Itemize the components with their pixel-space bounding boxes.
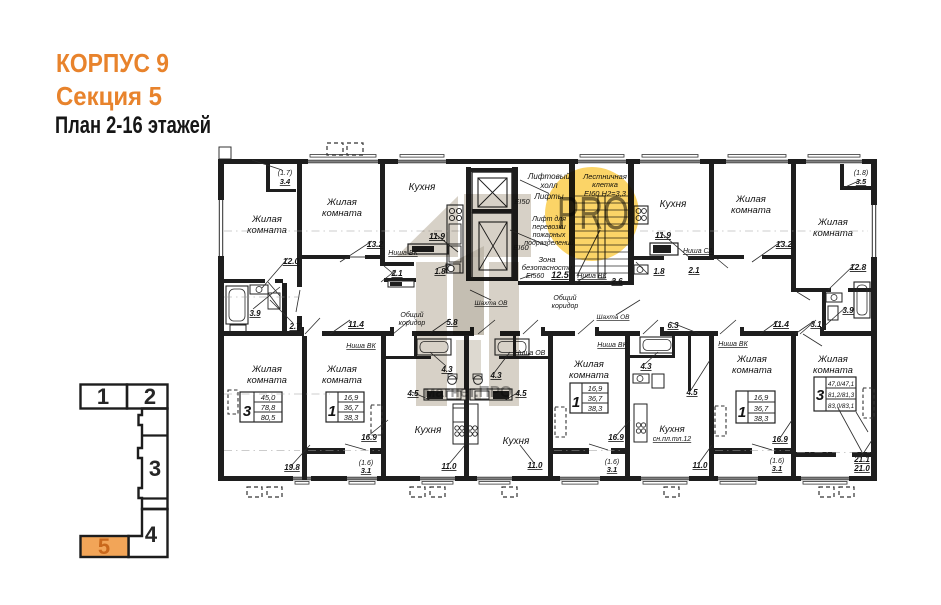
svg-text:комната: комната bbox=[247, 225, 287, 236]
svg-text:36,7: 36,7 bbox=[344, 403, 359, 412]
svg-text:16,9: 16,9 bbox=[344, 393, 359, 402]
svg-text:Секция 5: Секция 5 bbox=[56, 81, 162, 111]
svg-text:3: 3 bbox=[816, 387, 825, 404]
svg-text:1: 1 bbox=[97, 384, 109, 409]
svg-text:ЕІ560: ЕІ560 bbox=[526, 273, 544, 280]
svg-text:4: 4 bbox=[145, 522, 158, 547]
svg-text:Жилая: Жилая bbox=[573, 359, 604, 370]
svg-text:21.0: 21.0 bbox=[853, 464, 870, 473]
svg-text:сн.пл.тл.12: сн.пл.тл.12 bbox=[653, 436, 692, 443]
svg-text:Общий: Общий bbox=[553, 294, 576, 302]
svg-text:3: 3 bbox=[243, 403, 252, 420]
svg-text:Ниша ОВ: Ниша ОВ bbox=[515, 350, 546, 357]
svg-text:КОРПУС 9: КОРПУС 9 bbox=[56, 50, 169, 78]
svg-text:81,2/81,3: 81,2/81,3 bbox=[828, 392, 855, 399]
svg-text:11.0: 11.0 bbox=[528, 461, 544, 470]
svg-text:PRO: PRO bbox=[557, 187, 629, 239]
svg-text:Жилая: Жилая bbox=[817, 354, 848, 365]
svg-text:11.0: 11.0 bbox=[693, 461, 709, 470]
svg-text:3.9: 3.9 bbox=[842, 306, 854, 315]
svg-text:3.1: 3.1 bbox=[607, 465, 617, 474]
svg-text:магнет.ПРО: магнет.ПРО bbox=[424, 384, 512, 401]
svg-text:13.2: 13.2 bbox=[367, 239, 384, 249]
svg-text:Кухня: Кухня bbox=[503, 436, 530, 447]
svg-text:3: 3 bbox=[149, 456, 161, 481]
svg-text:Жилая: Жилая bbox=[326, 364, 357, 375]
svg-text:2.1: 2.1 bbox=[390, 269, 403, 278]
svg-text:(1.7): (1.7) bbox=[278, 170, 292, 177]
svg-text:3.1: 3.1 bbox=[361, 466, 371, 475]
svg-text:Шахта ОВ: Шахта ОВ bbox=[596, 314, 630, 321]
svg-text:3.9: 3.9 bbox=[249, 309, 261, 318]
svg-text:16,9: 16,9 bbox=[754, 393, 769, 402]
svg-text:45,0: 45,0 bbox=[261, 393, 276, 402]
svg-text:План 2-16 этажей: План 2-16 этажей bbox=[55, 112, 211, 139]
svg-text:16,9: 16,9 bbox=[588, 384, 603, 393]
svg-text:комната: комната bbox=[813, 228, 853, 239]
svg-text:1: 1 bbox=[328, 403, 336, 420]
svg-text:3.1: 3.1 bbox=[772, 464, 782, 473]
svg-text:комната: комната bbox=[813, 365, 853, 376]
svg-text:комната: комната bbox=[322, 375, 362, 386]
svg-text:Жилая: Жилая bbox=[735, 194, 766, 205]
svg-text:36,7: 36,7 bbox=[588, 394, 603, 403]
svg-text:1: 1 bbox=[572, 394, 580, 411]
svg-text:2.6: 2.6 bbox=[610, 277, 623, 286]
svg-text:36,7: 36,7 bbox=[754, 404, 769, 413]
svg-text:38,3: 38,3 bbox=[754, 414, 769, 423]
svg-text:3.4: 3.4 bbox=[280, 177, 291, 186]
svg-text:Жилая: Жилая bbox=[817, 217, 848, 228]
svg-text:16.9: 16.9 bbox=[361, 433, 377, 442]
svg-text:Кухня: Кухня bbox=[660, 199, 687, 210]
svg-text:Жилая: Жилая bbox=[736, 354, 767, 365]
svg-text:комната: комната bbox=[732, 365, 772, 376]
svg-text:16.9: 16.9 bbox=[608, 433, 624, 442]
svg-text:5: 5 bbox=[98, 534, 110, 559]
svg-text:2: 2 bbox=[144, 384, 156, 409]
svg-text:83,0/83,1: 83,0/83,1 bbox=[828, 403, 854, 410]
svg-text:11.4: 11.4 bbox=[348, 319, 364, 329]
svg-text:16.9: 16.9 bbox=[772, 435, 788, 444]
svg-text:Ниша ВК: Ниша ВК bbox=[597, 342, 627, 349]
svg-text:47,0/47,1: 47,0/47,1 bbox=[828, 381, 854, 388]
svg-text:Ниша ВК: Ниша ВК bbox=[718, 341, 748, 348]
svg-text:комната: комната bbox=[731, 205, 771, 216]
svg-text:Кухня: Кухня bbox=[409, 182, 436, 193]
svg-text:комната: комната bbox=[569, 370, 609, 381]
svg-text:Ниша ВК: Ниша ВК bbox=[346, 343, 376, 350]
svg-text:Жилая: Жилая bbox=[251, 364, 282, 375]
svg-text:Ниша СА: Ниша СА bbox=[683, 248, 713, 255]
svg-text:1.8: 1.8 bbox=[653, 267, 665, 276]
svg-text:11.4: 11.4 bbox=[773, 319, 789, 329]
svg-text:2.7: 2.7 bbox=[288, 322, 301, 331]
svg-text:Жилая: Жилая bbox=[251, 214, 282, 225]
svg-text:38,3: 38,3 bbox=[588, 404, 603, 413]
svg-text:78,8: 78,8 bbox=[261, 403, 276, 412]
svg-text:80,5: 80,5 bbox=[261, 413, 276, 422]
svg-text:12.5: 12.5 bbox=[551, 270, 570, 280]
svg-text:6.3: 6.3 bbox=[667, 321, 679, 330]
svg-text:комната: комната bbox=[322, 208, 362, 219]
svg-text:комната: комната bbox=[247, 375, 287, 386]
svg-text:Кухня: Кухня bbox=[659, 424, 684, 435]
svg-text:(1.8): (1.8) bbox=[854, 170, 868, 177]
svg-text:38,3: 38,3 bbox=[344, 413, 359, 422]
svg-text:1: 1 bbox=[738, 404, 746, 421]
svg-text:Жилая: Жилая bbox=[326, 197, 357, 208]
svg-text:коридор: коридор bbox=[552, 302, 579, 310]
svg-text:2.1: 2.1 bbox=[687, 266, 700, 275]
svg-text:Кухня: Кухня bbox=[415, 425, 442, 436]
